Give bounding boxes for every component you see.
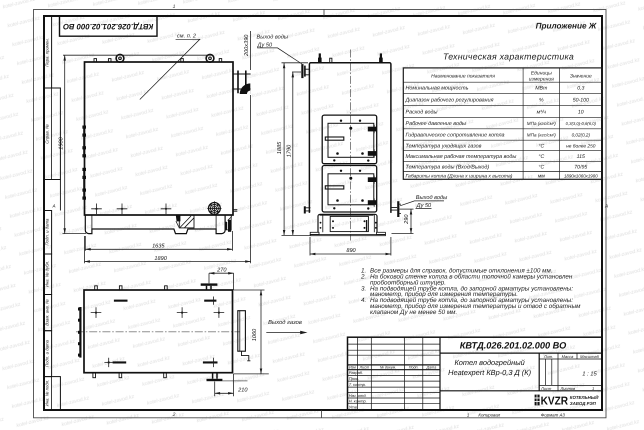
svg-text:Лит.: Лит. (543, 354, 553, 359)
svg-text:Н. контр.: Н. контр. (349, 399, 367, 404)
svg-text:1980: 1980 (59, 136, 65, 149)
svg-text:1 : 15: 1 : 15 (582, 372, 597, 378)
svg-text:Габариты котла (Длина х ширина: Габариты котла (Длина х ширина х высота) (406, 173, 513, 179)
svg-text:Расход воды: Расход воды (406, 110, 438, 116)
svg-text:КВТД.026.201.02.000 ВО: КВТД.026.201.02.000 ВО (460, 341, 566, 351)
svg-text:Т. контр.: Т. контр. (349, 382, 366, 387)
svg-text:1: 1 (592, 386, 594, 391)
svg-text:1: 1 (173, 4, 176, 10)
svg-text:не более 250: не более 250 (566, 143, 596, 149)
svg-text:мм: мм (538, 173, 546, 179)
svg-text:Перв. примен.: Перв. примен. (45, 38, 50, 67)
svg-text:Максимальная рабочая температу: Максимальная рабочая температура воды (406, 154, 517, 160)
svg-text:Листов: Листов (560, 386, 576, 391)
svg-text:МПа (кгс/см²): МПа (кгс/см²) (527, 132, 556, 137)
svg-text:Выход воды: Выход воды (416, 194, 447, 201)
svg-text:МПа (кгс/см²): МПа (кгс/см²) (527, 121, 556, 126)
svg-text:290: 290 (404, 214, 410, 225)
svg-text:1885: 1885 (277, 141, 283, 154)
svg-text:Диапазон рабочего регулировани: Диапазон рабочего регулирования (405, 97, 494, 103)
svg-text:клапаном Ду не менее 50 мм.: клапаном Ду не менее 50 мм. (370, 309, 457, 316)
svg-text:Подп.: Подп. (409, 366, 419, 370)
svg-text:°С: °С (538, 154, 544, 160)
svg-text:890: 890 (346, 248, 356, 254)
svg-text:%: % (539, 97, 544, 103)
svg-text:ЗАВОД РЭП: ЗАВОД РЭП (570, 401, 597, 406)
svg-text:Выход газов: Выход газов (268, 319, 302, 326)
svg-text:2: 2 (172, 412, 176, 418)
svg-text:0,3: 0,3 (577, 86, 584, 92)
svg-text:Взам. инв. №: Взам. инв. № (45, 299, 50, 326)
svg-text:Рабочее давление воды: Рабочее давление воды (406, 121, 466, 127)
svg-text:210: 210 (237, 388, 248, 394)
svg-text:А: А (604, 204, 608, 209)
svg-text:Температура воды (Вход/Выход): Температура воды (Вход/Выход) (406, 164, 490, 170)
svg-text:4.: 4. (361, 297, 366, 304)
svg-text:Справ. №: Справ. № (44, 124, 49, 144)
svg-text:Инв. № подл.: Инв. № подл. (44, 380, 49, 407)
svg-text:Масштаб: Масштаб (580, 354, 599, 359)
svg-text:Разраб.: Разраб. (349, 370, 363, 375)
svg-text:10: 10 (578, 110, 584, 116)
svg-text:Лист: Лист (540, 386, 552, 391)
svg-text:Температура уходящих газов: Температура уходящих газов (406, 143, 482, 149)
svg-text:Инв. № дубл.: Инв. № дубл. (45, 261, 50, 287)
svg-text:°С: °С (538, 164, 544, 170)
svg-text:1890х1060х1980: 1890х1060х1980 (564, 173, 598, 178)
svg-text:200х390: 200х390 (244, 34, 250, 57)
svg-text:Лист: Лист (359, 366, 370, 370)
svg-text:Выход воды: Выход воды (257, 34, 288, 41)
svg-text:Нач. отд.: Нач. отд. (349, 393, 367, 398)
svg-text:1790: 1790 (286, 144, 292, 157)
svg-text:Масса: Масса (562, 354, 575, 359)
svg-text:Подп. и дата: Подп. и дата (45, 218, 50, 246)
svg-text:Пров.: Пров. (349, 376, 360, 381)
svg-text:см. п. 2: см. п. 2 (177, 34, 197, 40)
svg-text:А: А (51, 204, 55, 209)
svg-text:Утв.: Утв. (349, 405, 358, 410)
svg-text:№ докум.: № докум. (380, 366, 396, 370)
svg-text:0,02(0,2): 0,02(0,2) (572, 132, 591, 137)
svg-text:Дата: Дата (426, 366, 437, 370)
svg-text:КВТД.026.201.02.000 ВО: КВТД.026.201.02.000 ВО (63, 22, 153, 31)
svg-text:1635: 1635 (152, 244, 165, 250)
svg-text:Гидравлическое сопротивление к: Гидравлическое сопротивление котла (406, 132, 505, 138)
svg-text:1890: 1890 (154, 256, 167, 262)
svg-text:3.: 3. (361, 285, 366, 292)
svg-text:0,3(3,0)-0,6(6,0): 0,3(3,0)-0,6(6,0) (566, 121, 597, 126)
svg-text:м³/ч: м³/ч (537, 110, 547, 116)
svg-text:Подп. и дата: Подп. и дата (45, 339, 50, 367)
svg-text:Формат А3: Формат А3 (541, 412, 566, 417)
svg-text:Копировал: Копировал (478, 412, 500, 417)
svg-text:270: 270 (216, 267, 227, 273)
svg-text:Котел водогрейный: Котел водогрейный (454, 358, 524, 367)
svg-text:Номинальная мощность: Номинальная мощность (406, 86, 469, 92)
svg-text:70/95: 70/95 (574, 164, 587, 170)
svg-text:КОТЕЛЬНЫЙ: КОТЕЛЬНЫЙ (570, 395, 599, 400)
svg-text:1060: 1060 (252, 328, 258, 341)
svg-text:измерения: измерения (529, 76, 554, 82)
svg-text:Приложение Ж: Приложение Ж (536, 22, 597, 31)
svg-text:115: 115 (577, 154, 585, 160)
svg-text:Техническая характеристика: Техническая характеристика (443, 52, 574, 62)
svg-text:МВт: МВт (535, 86, 548, 92)
svg-text:°С: °С (538, 143, 544, 149)
svg-text:Изм: Изм (349, 366, 356, 370)
svg-text:Значение: Значение (570, 73, 592, 79)
svg-text:KVZR: KVZR (541, 396, 569, 408)
svg-text:50-100: 50-100 (573, 97, 589, 103)
svg-text:Heatexpert КВр-0,3 Д (К): Heatexpert КВр-0,3 Д (К) (448, 368, 531, 377)
svg-text:Наименование показателя: Наименование показателя (431, 73, 495, 79)
svg-text:2.: 2. (360, 274, 366, 281)
